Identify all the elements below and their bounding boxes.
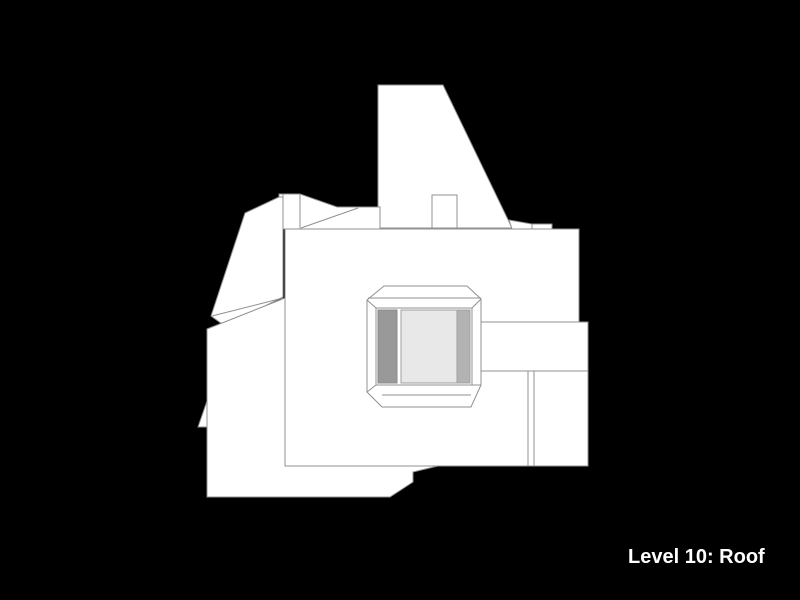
shape-parapet-step	[532, 224, 552, 229]
roof-plan-drawing	[0, 0, 800, 600]
shape-left-edge-triangle	[198, 401, 207, 427]
shape-skylight-glass	[401, 310, 457, 383]
shape-skylight-dark-band	[378, 310, 397, 383]
shape-skylight-right-band	[457, 310, 470, 383]
shape-upper-band-roof	[279, 194, 380, 229]
level-caption: Level 10: Roof	[628, 546, 765, 569]
shape-parapet-quad	[509, 220, 532, 229]
shape-stair-bulkhead	[432, 195, 457, 228]
slide-canvas: Level 10: Roof	[0, 0, 800, 600]
